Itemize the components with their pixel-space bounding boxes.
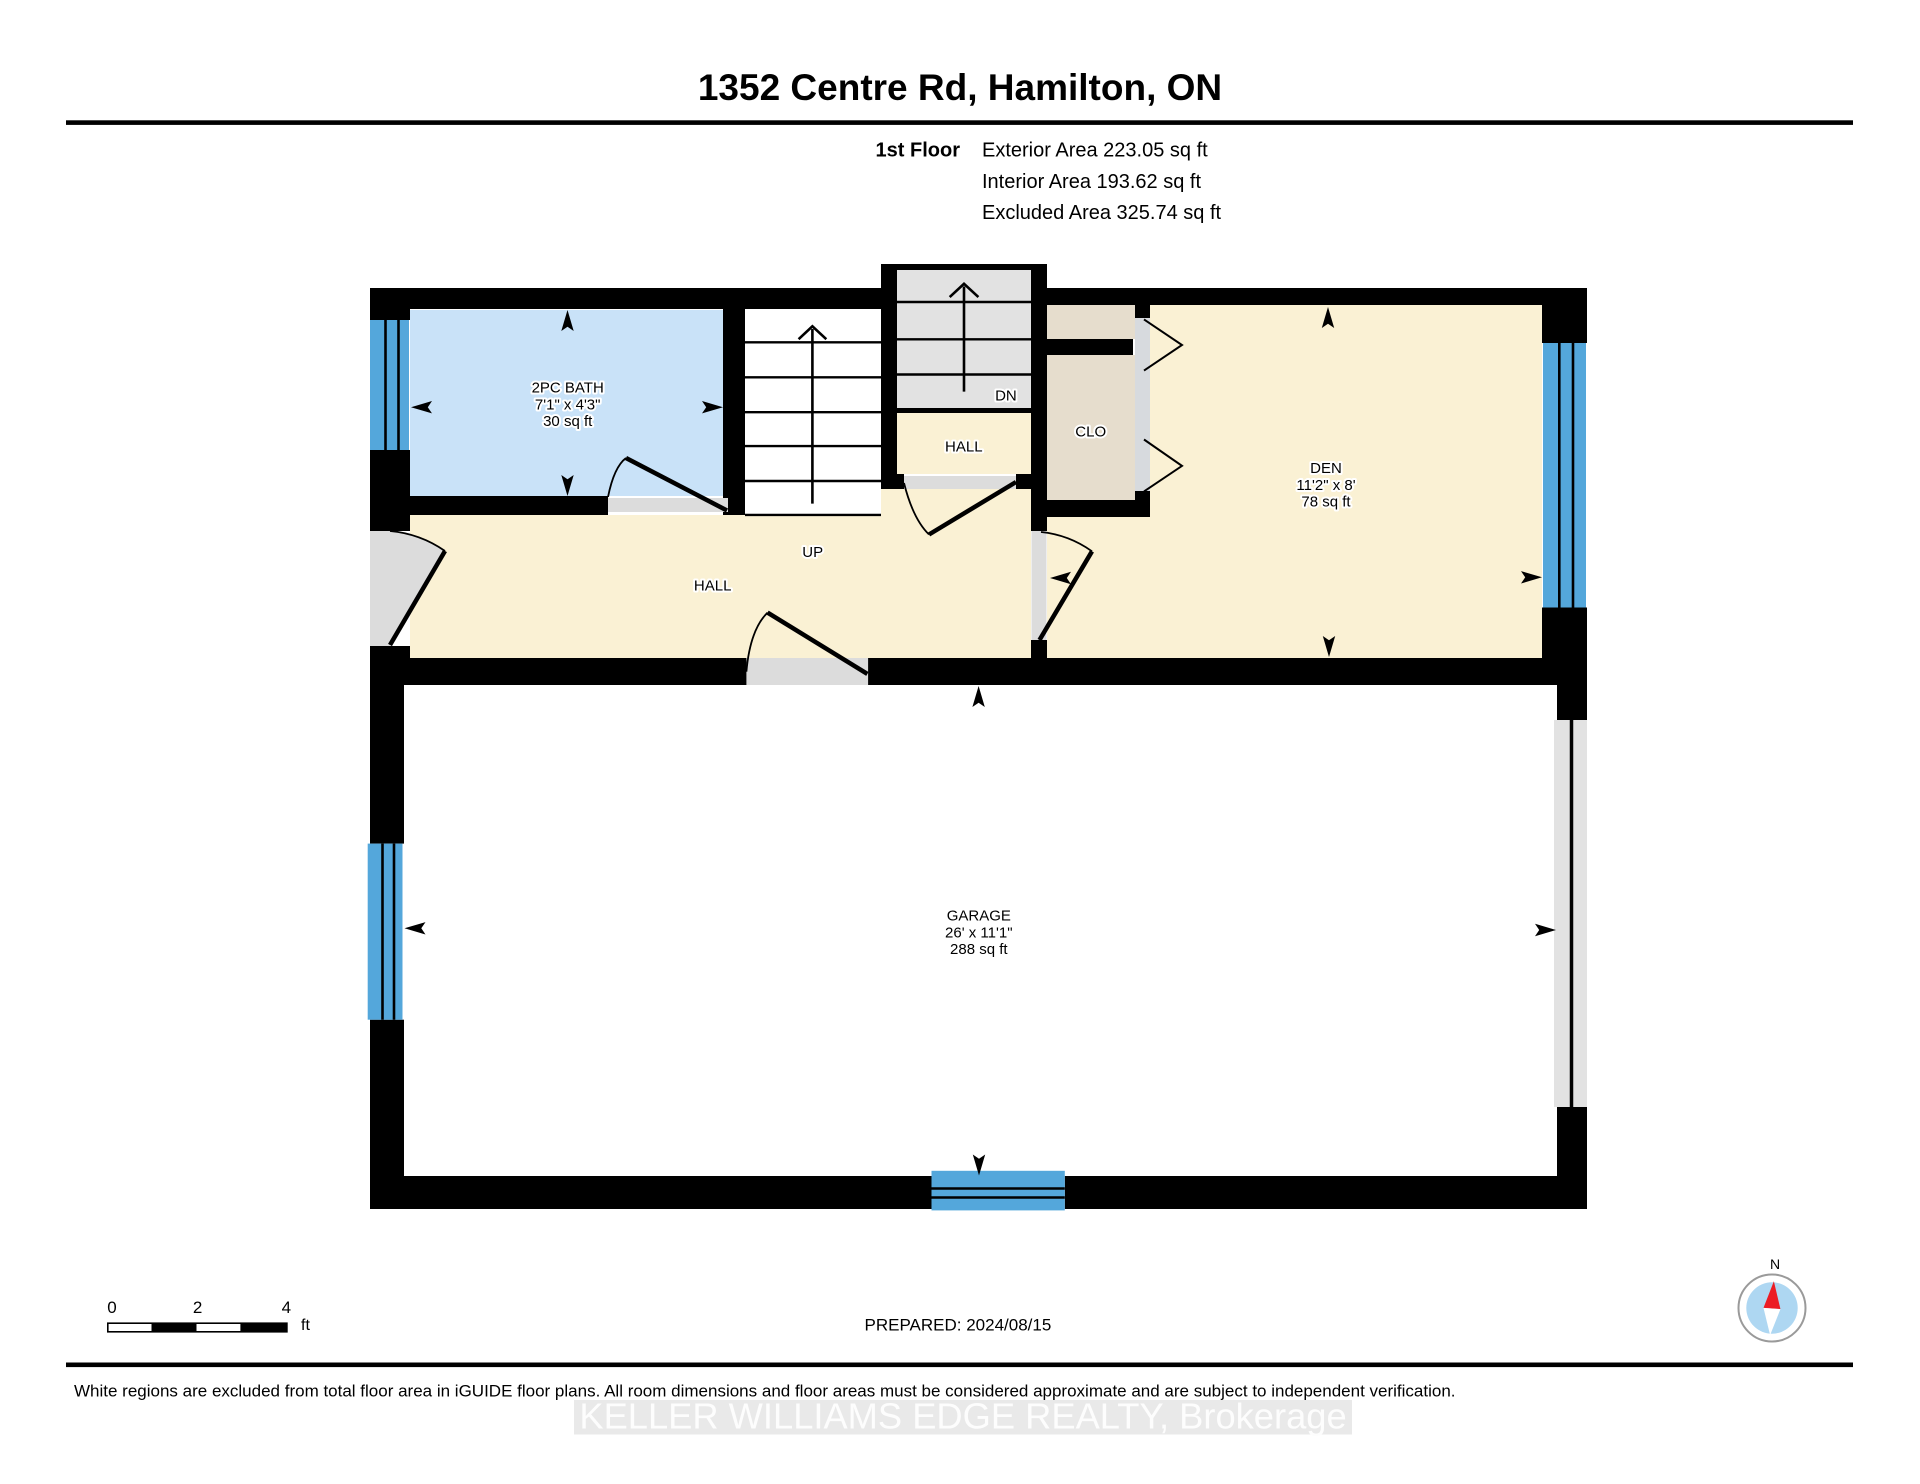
svg-text:2: 2 xyxy=(193,1298,202,1317)
svg-text:KELLER WILLIAMS EDGE REALTY, B: KELLER WILLIAMS EDGE REALTY, Brokerage xyxy=(579,1396,1346,1437)
svg-text:ft: ft xyxy=(301,1317,310,1334)
svg-text:26' x 11'1": 26' x 11'1" xyxy=(945,924,1013,941)
svg-text:7'1" x 4'3": 7'1" x 4'3" xyxy=(535,396,601,413)
svg-text:0: 0 xyxy=(107,1298,116,1317)
svg-text:DEN: DEN xyxy=(1310,460,1342,477)
svg-text:HALL: HALL xyxy=(694,578,732,595)
svg-text:78 sq ft: 78 sq ft xyxy=(1301,494,1351,511)
svg-text:PREPARED: 2024/08/15: PREPARED: 2024/08/15 xyxy=(865,1316,1052,1335)
svg-text:DN: DN xyxy=(995,388,1017,405)
svg-text:11'2" x 8': 11'2" x 8' xyxy=(1296,477,1355,494)
svg-text:HALL: HALL xyxy=(945,438,983,455)
svg-text:UP: UP xyxy=(802,544,823,561)
svg-text:N: N xyxy=(1770,1256,1780,1272)
svg-text:Excluded Area 325.74 sq ft: Excluded Area 325.74 sq ft xyxy=(982,202,1221,224)
svg-text:30 sq ft: 30 sq ft xyxy=(543,413,593,430)
svg-text:CLO: CLO xyxy=(1075,424,1106,441)
svg-text:Exterior Area 223.05 sq ft: Exterior Area 223.05 sq ft xyxy=(982,140,1208,162)
svg-text:1st Floor: 1st Floor xyxy=(876,140,961,162)
svg-text:Interior Area 193.62 sq ft: Interior Area 193.62 sq ft xyxy=(982,171,1201,193)
svg-text:GARAGE: GARAGE xyxy=(947,908,1011,925)
svg-text:288 sq ft: 288 sq ft xyxy=(950,941,1008,958)
svg-text:2PC BATH: 2PC BATH xyxy=(532,380,604,397)
svg-text:1352 Centre Rd, Hamilton, ON: 1352 Centre Rd, Hamilton, ON xyxy=(698,67,1222,108)
svg-text:4: 4 xyxy=(282,1298,291,1317)
